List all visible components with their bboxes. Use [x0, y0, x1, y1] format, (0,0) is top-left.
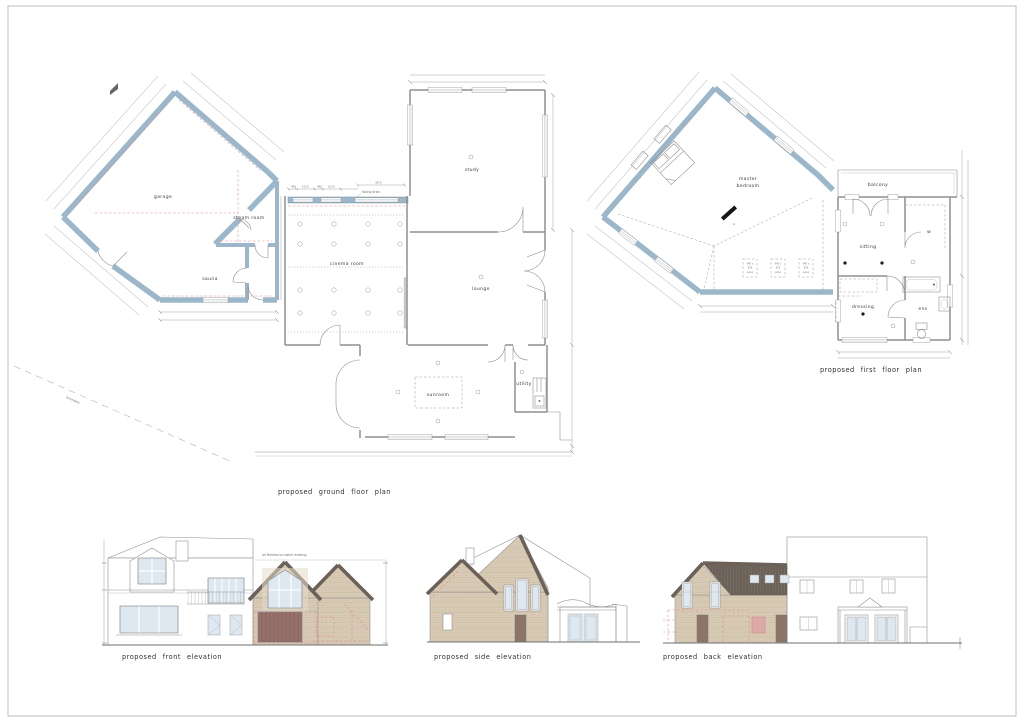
garage-door — [258, 612, 302, 642]
spotlight-dot — [880, 261, 883, 264]
room-label-study: study — [465, 167, 480, 173]
drawing-sheet: boundary — [0, 0, 1024, 723]
room-label-sunroom: sunroom — [427, 392, 450, 398]
ensuite-windows — [842, 337, 930, 342]
sauna-window — [203, 297, 228, 303]
spotlight-dot — [843, 261, 846, 264]
back-door — [776, 615, 787, 642]
velux-size-w: 940 x — [803, 263, 810, 266]
room-label-steam-room: steam room — [233, 215, 264, 221]
existing-wide-window — [116, 606, 182, 635]
room-label-cinema: cinema room — [330, 261, 364, 267]
chimney — [466, 548, 474, 564]
facing-brick-label: facing brick — [362, 190, 380, 194]
front-note: all finishes to match existing — [262, 553, 306, 557]
lounge-window — [542, 300, 547, 338]
side-door — [515, 615, 526, 642]
front-elevation-title: proposed front elevation — [122, 653, 222, 661]
chimney — [176, 541, 188, 561]
velux-name: velux — [803, 271, 810, 274]
room-label-dressing: dressing — [852, 304, 874, 310]
balcony-doors-panel — [208, 578, 244, 603]
finishes-note: all finishes to match existing — [262, 553, 306, 557]
ground-floor-title: proposed ground floor plan — [278, 488, 391, 496]
dim-440-b: 440 — [317, 185, 322, 189]
room-label-sitting: sitting — [860, 244, 877, 250]
velux-size-w: 940 x — [775, 263, 782, 266]
back-door — [697, 615, 708, 642]
spotlight-dot — [861, 312, 864, 315]
rooflights — [750, 575, 789, 583]
velux-size-h: 550 — [776, 267, 781, 270]
room-label-ensuite: ens — [918, 307, 927, 312]
room-label-garage: garage — [154, 194, 172, 200]
side-elevation-title: proposed side elevation — [434, 653, 531, 661]
room-label-master-1: master — [739, 176, 757, 182]
dim-1010-b: 1010 — [328, 185, 335, 189]
velux-name: velux — [775, 271, 782, 274]
room-label-balcony: balcony — [868, 182, 888, 188]
dim-440-a: 440 — [291, 185, 296, 189]
room-label-lounge: lounge — [472, 286, 490, 292]
room-label-wardrobe: w — [927, 230, 931, 235]
architectural-drawing: boundary — [0, 0, 1024, 723]
room-label-master-2: bedroom — [737, 183, 760, 189]
velux-size-h: 550 — [748, 267, 753, 270]
velux-size-h: 550 — [804, 267, 809, 270]
dim-1010-a: 1010 — [302, 185, 309, 189]
room-label-utility: utility — [516, 381, 532, 387]
velux-name: velux — [747, 271, 754, 274]
velux-size-w: 940 x — [747, 263, 754, 266]
back-elevation-title: proposed back elevation — [663, 653, 763, 661]
room-label-sauna: sauna — [202, 277, 218, 282]
dim-3875: 3875 — [375, 181, 382, 185]
first-floor-title: proposed first floor plan — [820, 366, 922, 374]
existing-house-back — [787, 537, 927, 643]
existing-house-front — [108, 537, 253, 645]
